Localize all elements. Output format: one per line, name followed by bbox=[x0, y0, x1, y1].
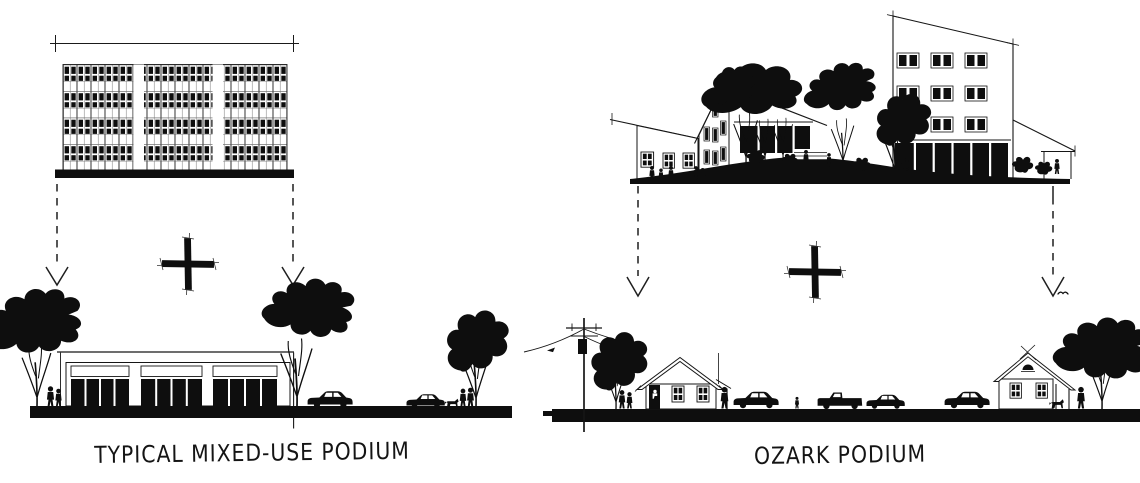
person-silhouette bbox=[47, 386, 54, 406]
building-cluster-elevation bbox=[610, 11, 1075, 185]
storefront-glazing bbox=[71, 379, 277, 406]
plus-sign-icon bbox=[784, 241, 846, 303]
doorway bbox=[649, 385, 660, 409]
sedan-car bbox=[308, 391, 353, 408]
down-arrow-icon bbox=[46, 184, 68, 285]
sedan-car bbox=[867, 395, 905, 409]
person-silhouette bbox=[795, 397, 799, 409]
sedan-car bbox=[734, 392, 779, 409]
bird-icon bbox=[1058, 292, 1068, 294]
podium-slab bbox=[55, 170, 294, 179]
retail-podium-streetscape bbox=[0, 273, 512, 429]
house bbox=[635, 353, 731, 409]
person-silhouette bbox=[1077, 387, 1085, 409]
ozark-streetscape bbox=[524, 292, 1140, 432]
transformer-box bbox=[578, 339, 587, 354]
storefront-transoms bbox=[71, 366, 277, 377]
down-arrow-icon bbox=[627, 186, 649, 296]
apartment-block-elevation bbox=[55, 65, 294, 179]
down-arrow-icon bbox=[1042, 186, 1064, 296]
street-tree bbox=[447, 310, 509, 406]
diagram-canvas: TYPICAL MIXED-USE PODIUM OZARK PODIUM bbox=[0, 0, 1140, 483]
person-silhouette bbox=[1054, 159, 1059, 174]
person-silhouette bbox=[721, 387, 729, 409]
street-tree bbox=[1052, 315, 1140, 409]
person-silhouette bbox=[55, 389, 61, 407]
down-arrow-icon bbox=[282, 184, 304, 285]
pickup-truck bbox=[818, 393, 863, 410]
sedan-car bbox=[945, 392, 990, 409]
entry-steps bbox=[794, 149, 827, 160]
left-panel bbox=[0, 35, 512, 429]
gable-vent bbox=[1023, 365, 1034, 371]
person-silhouette bbox=[627, 392, 633, 408]
person-silhouette bbox=[619, 390, 625, 408]
plus-sign-icon bbox=[157, 233, 219, 295]
right-panel bbox=[524, 11, 1140, 433]
ground-line bbox=[30, 406, 512, 418]
podium-diagram bbox=[0, 0, 1140, 483]
caption-ozark-podium: OZARK PODIUM bbox=[694, 440, 985, 471]
person-silhouette bbox=[460, 389, 466, 407]
ground-line bbox=[552, 409, 1140, 422]
dimension-line bbox=[50, 35, 299, 52]
caption-typical-mixed-use-podium: TYPICAL MIXED-USE PODIUM bbox=[72, 437, 431, 469]
